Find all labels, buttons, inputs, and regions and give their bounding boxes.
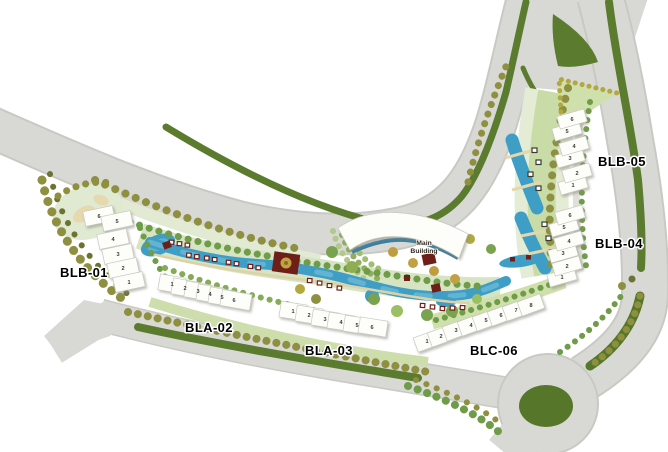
block-bla03 xyxy=(279,301,388,337)
unit-number: 8 xyxy=(529,303,532,309)
unit-number: 3 xyxy=(323,317,326,323)
unit-number: 5 xyxy=(565,129,568,135)
unit-number: 3 xyxy=(116,252,119,258)
unit-number: 1 xyxy=(127,280,130,286)
unit-number: 6 xyxy=(570,117,573,123)
unit-number: 6 xyxy=(499,313,502,319)
block-label-blc06: BLC-06 xyxy=(470,343,518,358)
unit-number: 3 xyxy=(454,328,457,334)
unit-number: 6 xyxy=(568,213,571,219)
unit-number: 3 xyxy=(196,289,199,295)
block-label-bla03: BLA-03 xyxy=(305,343,353,358)
block-label-blb05: BLB-05 xyxy=(598,154,646,169)
unit-number: 3 xyxy=(568,156,571,162)
unit-number: 1 xyxy=(571,183,574,189)
unit-number: 7 xyxy=(514,308,517,314)
unit-number: 2 xyxy=(565,264,568,270)
unit-number: 6 xyxy=(97,214,100,220)
site-plan-page: 6 5 4 3 2 1 1 2 3 4 5 6 1 2 3 4 5 6 1 2 … xyxy=(0,0,668,452)
unit-number: 2 xyxy=(575,171,578,177)
unit-number: 1 xyxy=(425,339,428,345)
unit-number: 1 xyxy=(170,282,173,288)
block-label-blb04: BLB-04 xyxy=(595,236,643,251)
unit-number: 2 xyxy=(121,266,124,272)
unit-number: 5 xyxy=(355,323,358,329)
main-building-label-line1: Main xyxy=(416,240,431,247)
main-building-label-line2: Building xyxy=(410,248,437,255)
site-plan-svg: 6 5 4 3 2 1 1 2 3 4 5 6 1 2 3 4 5 6 1 2 … xyxy=(0,0,668,452)
unit-number: 5 xyxy=(484,318,487,324)
unit-number: 2 xyxy=(307,313,310,319)
unit-number: 5 xyxy=(562,225,565,231)
unit-number: 1 xyxy=(560,275,563,281)
block-label-blb01: BLB-01 xyxy=(60,265,108,280)
unit-number: 5 xyxy=(220,295,223,301)
block-label-bla02: BLA-02 xyxy=(185,320,233,335)
unit-number: 2 xyxy=(183,286,186,292)
unit-number: 6 xyxy=(370,325,373,331)
unit-number: 6 xyxy=(232,298,235,304)
roundabout-lawn xyxy=(519,385,573,427)
unit-number: 3 xyxy=(561,251,564,257)
unit-number: 1 xyxy=(291,309,294,315)
unit-number: 5 xyxy=(115,219,118,225)
unit-number: 2 xyxy=(439,334,442,340)
